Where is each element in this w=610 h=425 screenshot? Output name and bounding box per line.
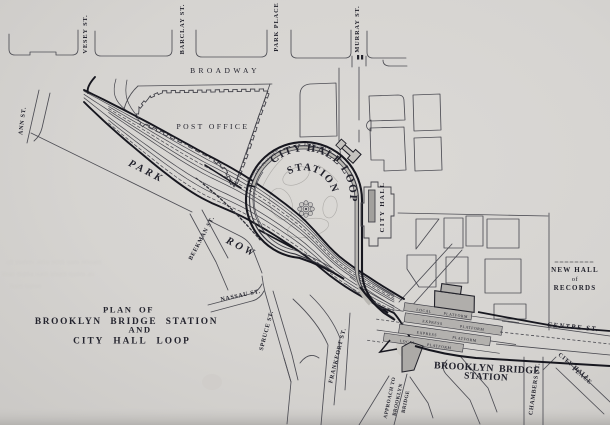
svg-text:of: of xyxy=(572,276,579,283)
svg-text:CITY HALL LOOP: CITY HALL LOOP xyxy=(73,337,191,347)
svg-text:BROADWAY: BROADWAY xyxy=(190,66,260,75)
svg-text:PLAN OF: PLAN OF xyxy=(103,304,154,314)
svg-text:BROOKLYN BRIDGE STATION: BROOKLYN BRIDGE STATION xyxy=(35,317,218,327)
svg-text:MURRAY ST.: MURRAY ST. xyxy=(354,5,361,52)
svg-text:AND: AND xyxy=(128,325,151,335)
svg-text:NEW HALL: NEW HALL xyxy=(551,266,599,274)
svg-text:CITY HALL: CITY HALL xyxy=(379,182,386,233)
svg-text:VESEY ST.: VESEY ST. xyxy=(82,14,89,53)
svg-text:BARCLAY ST.: BARCLAY ST. xyxy=(179,4,186,55)
svg-text:mau numa uam anum uanm au: mau numa uam anum uanm au xyxy=(2,269,95,278)
svg-text:RECORDS: RECORDS xyxy=(554,284,597,292)
svg-text:nam uamn: nam uamn xyxy=(10,281,42,290)
svg-text:un mmnu amu nnm uam nnuam: un mmnu amu nnm uam nnuam xyxy=(6,257,102,266)
svg-text:POST OFFICE: POST OFFICE xyxy=(177,122,250,131)
svg-text:PARK PLACE: PARK PLACE xyxy=(273,2,280,51)
